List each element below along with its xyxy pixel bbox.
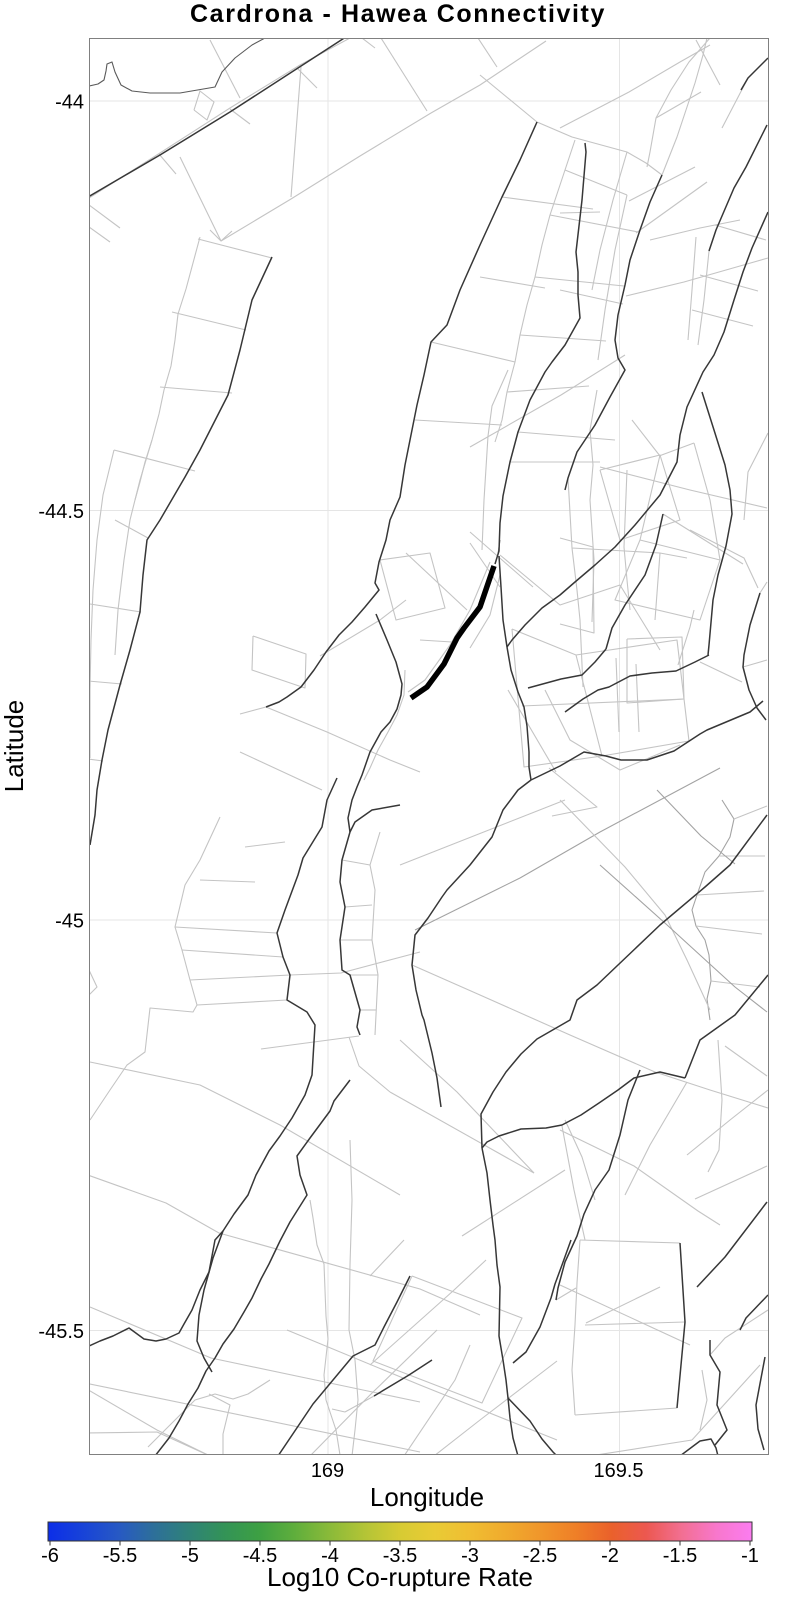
svg-text:-5.5: -5.5 <box>103 1545 137 1567</box>
svg-text:Latitude: Latitude <box>0 700 29 793</box>
svg-text:169.5: 169.5 <box>593 1460 643 1482</box>
svg-text:-45: -45 <box>55 911 84 933</box>
svg-text:169: 169 <box>311 1460 344 1482</box>
svg-text:Log10 Co-rupture Rate: Log10 Co-rupture Rate <box>267 1562 533 1592</box>
svg-text:Cardrona - Hawea Connectivity: Cardrona - Hawea Connectivity <box>190 0 606 28</box>
svg-text:-45.5: -45.5 <box>38 1321 84 1343</box>
svg-text:-44.5: -44.5 <box>38 501 84 523</box>
svg-text:-1: -1 <box>741 1545 759 1567</box>
svg-text:-6: -6 <box>41 1545 59 1567</box>
svg-text:-5: -5 <box>181 1545 199 1567</box>
svg-text:Longitude: Longitude <box>370 1482 484 1512</box>
svg-text:-1.5: -1.5 <box>663 1545 697 1567</box>
svg-text:-44: -44 <box>55 92 84 114</box>
svg-text:-2: -2 <box>601 1545 619 1567</box>
